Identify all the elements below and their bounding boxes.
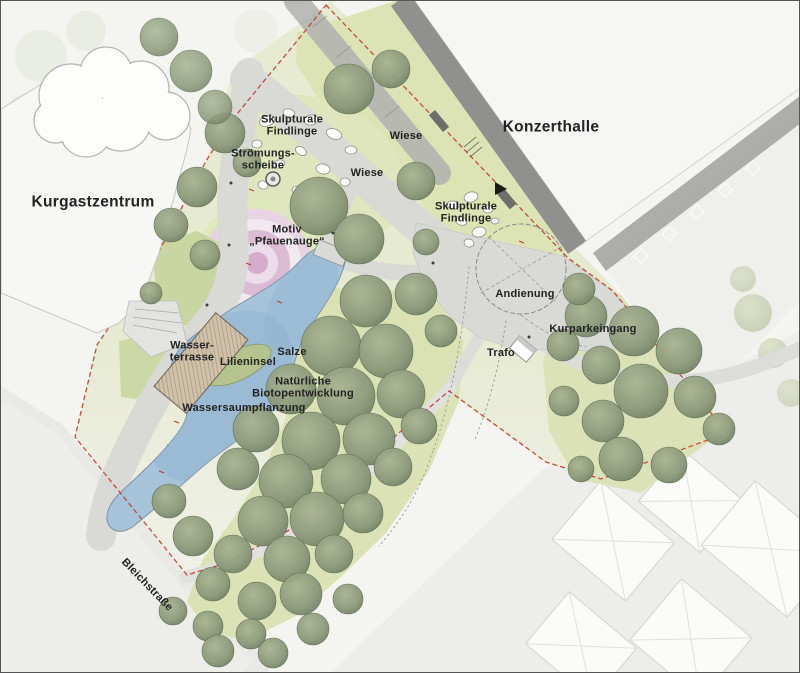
site-plan-graphic	[1, 1, 799, 672]
stroemungsscheibe-disc	[266, 172, 280, 186]
site-plan: Kurgastzentrum Konzerthalle Skulpturale …	[0, 0, 800, 673]
